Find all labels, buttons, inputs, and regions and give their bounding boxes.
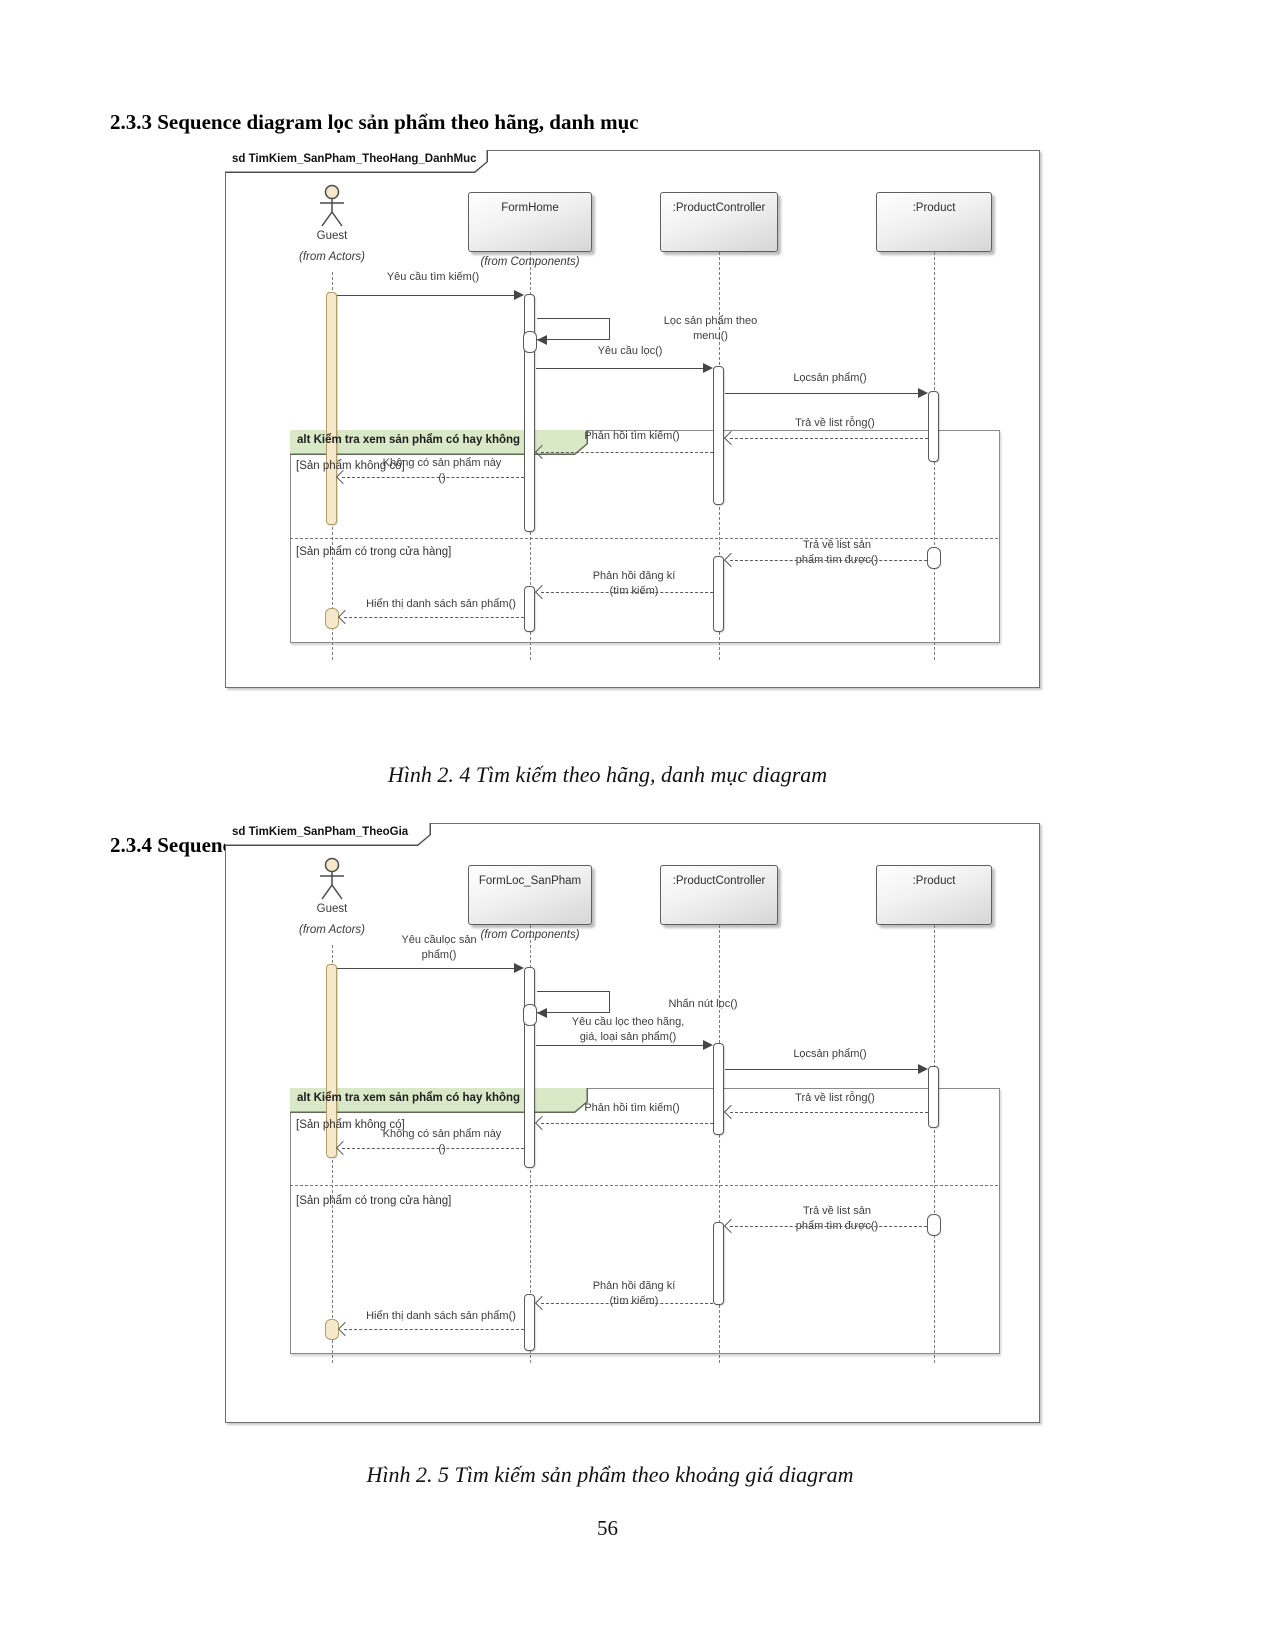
msg-line xyxy=(541,1303,713,1304)
lifeline-head-formhome: FormHome xyxy=(468,192,592,252)
formhome-stereotype: (from Components) xyxy=(460,256,600,268)
message-click-filter: Nhấn nút lọc() xyxy=(623,997,783,1012)
activation-product-2 xyxy=(927,547,941,569)
sequence-diagram-filter-by-price: sd TimKiem_SanPham_TheoGia Guest (from A… xyxy=(225,823,1040,1423)
msg-line xyxy=(725,1069,918,1070)
frame-label: sd TimKiem_SanPham_TheoHang_DanhMuc xyxy=(225,150,487,172)
msg-line xyxy=(541,1123,713,1124)
activation-guest-2 xyxy=(325,1319,339,1340)
message-search-reply: Phản hồi tìm kiếm() xyxy=(557,429,707,444)
arrowhead-icon xyxy=(514,290,524,300)
activation-guest xyxy=(326,292,337,525)
activation-formhome-1 xyxy=(524,294,535,532)
activation-formloc-self xyxy=(523,1004,537,1026)
arrowhead-icon xyxy=(537,335,547,345)
alt-guard-found: [Sản phẩm có trong cửa hàng] xyxy=(296,1195,451,1207)
frame-tab: sd TimKiem_SanPham_TheoGia xyxy=(225,823,431,846)
activation-controller-2 xyxy=(713,1222,724,1305)
activation-product-2 xyxy=(927,1214,941,1236)
figure-caption-2-5: Hình 2. 5 Tìm kiếm sản phẩm theo khoảng … xyxy=(0,1462,1220,1488)
msg-line xyxy=(725,393,918,394)
msg-line xyxy=(730,1112,928,1113)
arrowhead-icon xyxy=(514,963,524,973)
alt-operator-label: alt Kiểm tra xem sản phẩm có hay không xyxy=(297,1092,520,1104)
message-request-search: Yêu cầu tìm kiếm() xyxy=(343,270,523,285)
msg-line xyxy=(344,1329,524,1330)
msg-line xyxy=(337,968,514,969)
self-message-loop xyxy=(537,991,610,1013)
message-return-empty-list: Trả về list rỗng() xyxy=(750,1091,920,1106)
message-no-product: Không có sản phẩm này () xyxy=(358,1127,526,1157)
lifeline-head-product: :Product xyxy=(876,865,992,925)
frame-tab: sd TimKiem_SanPham_TheoHang_DanhMuc xyxy=(225,150,488,173)
msg-line xyxy=(536,1045,703,1046)
msg-line xyxy=(344,617,524,618)
figure-caption-2-4: Hình 2. 4 Tìm kiếm theo hãng, danh mục d… xyxy=(0,762,1215,788)
message-show-product-list: Hiển thị danh sách sản phẩm() xyxy=(351,1309,531,1324)
alt-divider xyxy=(290,1185,998,1186)
msg-line xyxy=(730,1226,927,1227)
arrowhead-icon xyxy=(703,363,713,373)
arrowhead-icon xyxy=(918,1064,928,1074)
msg-line xyxy=(730,438,928,439)
message-return-found-list: Trả về list sản phẩm tìm được() xyxy=(748,538,926,568)
frame-label: sd TimKiem_SanPham_TheoGia xyxy=(225,823,430,845)
activation-controller-2 xyxy=(713,556,724,632)
actor-icon xyxy=(315,184,349,228)
message-filter-by-menu: Lọc sản phẩm theo menu() xyxy=(623,314,798,344)
arrowhead-icon xyxy=(703,1040,713,1050)
activation-formhome-self xyxy=(523,331,537,353)
message-request-filter: Yêu cầu lọc() xyxy=(550,344,710,359)
msg-line xyxy=(541,592,713,593)
lifeline-head-productcontroller: :ProductController xyxy=(660,865,778,925)
message-filter-product: Lọcsản phẩm() xyxy=(750,1047,910,1062)
actor-stereotype: (from Actors) xyxy=(272,251,392,263)
section-heading-233: 2.3.3 Sequence diagram lọc sản phẩm theo… xyxy=(110,110,639,135)
msg-line xyxy=(536,368,703,369)
msg-line xyxy=(730,560,927,561)
message-search-reply: Phản hồi tìm kiếm() xyxy=(557,1101,707,1116)
msg-line xyxy=(342,1148,524,1149)
message-filter-product: Lọcsản phẩm() xyxy=(750,371,910,386)
activation-guest-2 xyxy=(325,608,339,629)
msg-line xyxy=(541,452,713,453)
activation-product-1 xyxy=(928,1066,939,1128)
message-request-filter-product: Yêu cầulọc sản phẩm() xyxy=(355,933,523,963)
actor-name: Guest xyxy=(282,230,382,242)
message-return-found-list: Trả về list sản phẩm tìm được() xyxy=(748,1204,926,1234)
document-page: 2.3.3 Sequence diagram lọc sản phẩm theo… xyxy=(0,0,1275,1650)
lifeline-head-formloc: FormLoc_SanPham xyxy=(468,865,592,925)
activation-controller-1 xyxy=(713,1043,724,1135)
activation-product-1 xyxy=(928,391,939,462)
msg-line xyxy=(342,477,524,478)
message-return-empty-list: Trả về list rỗng() xyxy=(750,416,920,431)
message-register-reply: Phản hồi đăng kí (tìm kiếm) xyxy=(558,1279,710,1309)
message-register-reply: Phản hồi đăng kí (tìm kiếm) xyxy=(558,569,710,599)
lifeline-head-product: :Product xyxy=(876,192,992,252)
self-message-loop xyxy=(537,318,610,340)
msg-line xyxy=(337,295,514,296)
actor-icon xyxy=(315,857,349,901)
message-request-filter-detail: Yêu cầu lọc theo hãng, giá, loại sản phẩ… xyxy=(539,1015,717,1045)
message-show-product-list: Hiển thị danh sách sản phẩm() xyxy=(351,597,531,612)
actor-name: Guest xyxy=(282,903,382,915)
sequence-diagram-filter-by-brand-category: sd TimKiem_SanPham_TheoHang_DanhMuc Gues… xyxy=(225,150,1040,688)
alt-operator-label: alt Kiểm tra xem sản phẩm có hay không xyxy=(297,434,520,446)
page-number: 56 xyxy=(0,1516,1215,1541)
lifeline-head-productcontroller: :ProductController xyxy=(660,192,778,252)
activation-controller-1 xyxy=(713,366,724,505)
alt-guard-found: [Sản phẩm có trong cửa hàng] xyxy=(296,546,451,558)
arrowhead-icon xyxy=(918,388,928,398)
message-no-product: Không có sản phẩm này () xyxy=(358,456,526,486)
